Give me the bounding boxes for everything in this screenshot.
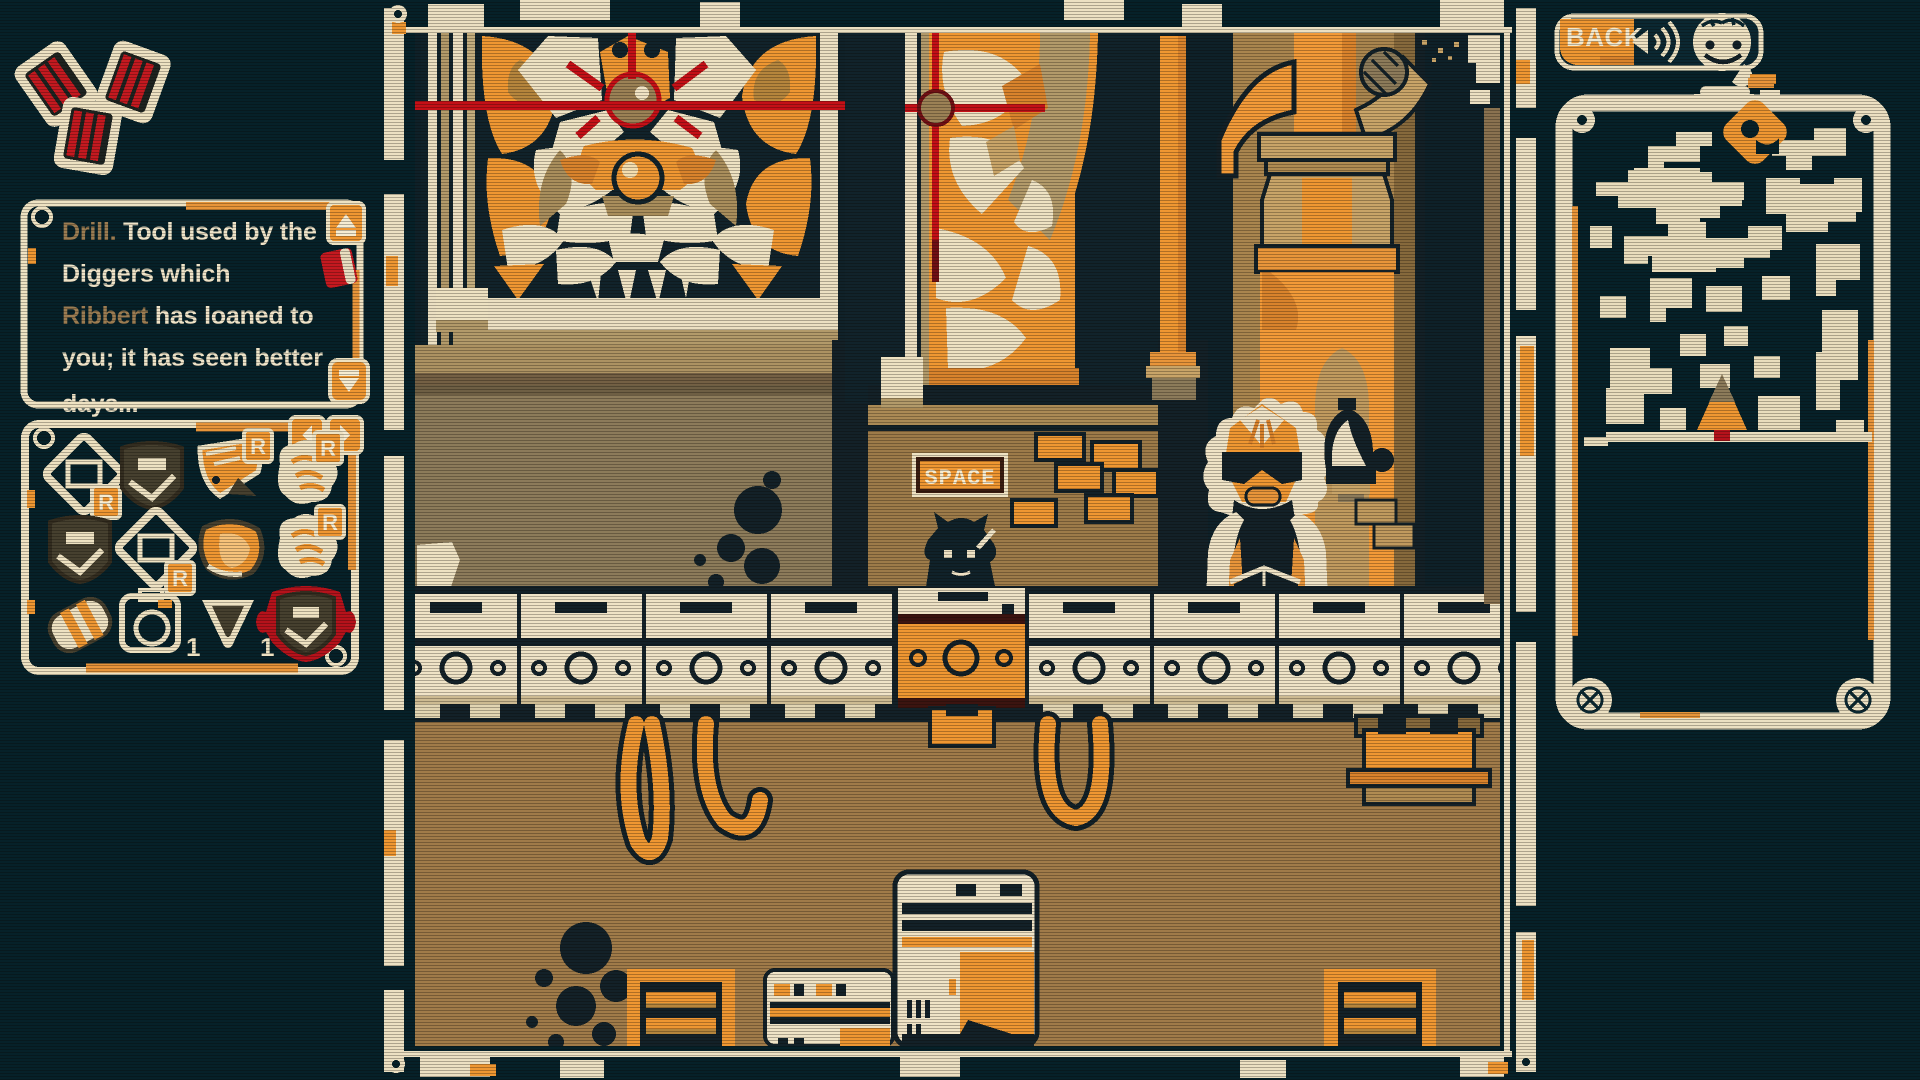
svg-text:R: R <box>250 434 266 459</box>
svg-text:R: R <box>322 510 338 535</box>
svg-text:you; it has seen better: you; it has seen better <box>62 344 323 372</box>
svg-text:SPACE: SPACE <box>924 466 995 491</box>
svg-text:R: R <box>98 490 114 515</box>
svg-text:Diggers which: Diggers which <box>62 260 230 288</box>
svg-text:Drill. Tool used by the: Drill. Tool used by the <box>62 218 317 246</box>
svg-text:1: 1 <box>186 632 200 662</box>
svg-text:Ribbert has loaned to: Ribbert has loaned to <box>62 302 313 330</box>
svg-text:R: R <box>320 436 336 461</box>
svg-text:BACK: BACK <box>1566 22 1643 52</box>
svg-text:R: R <box>172 566 188 591</box>
